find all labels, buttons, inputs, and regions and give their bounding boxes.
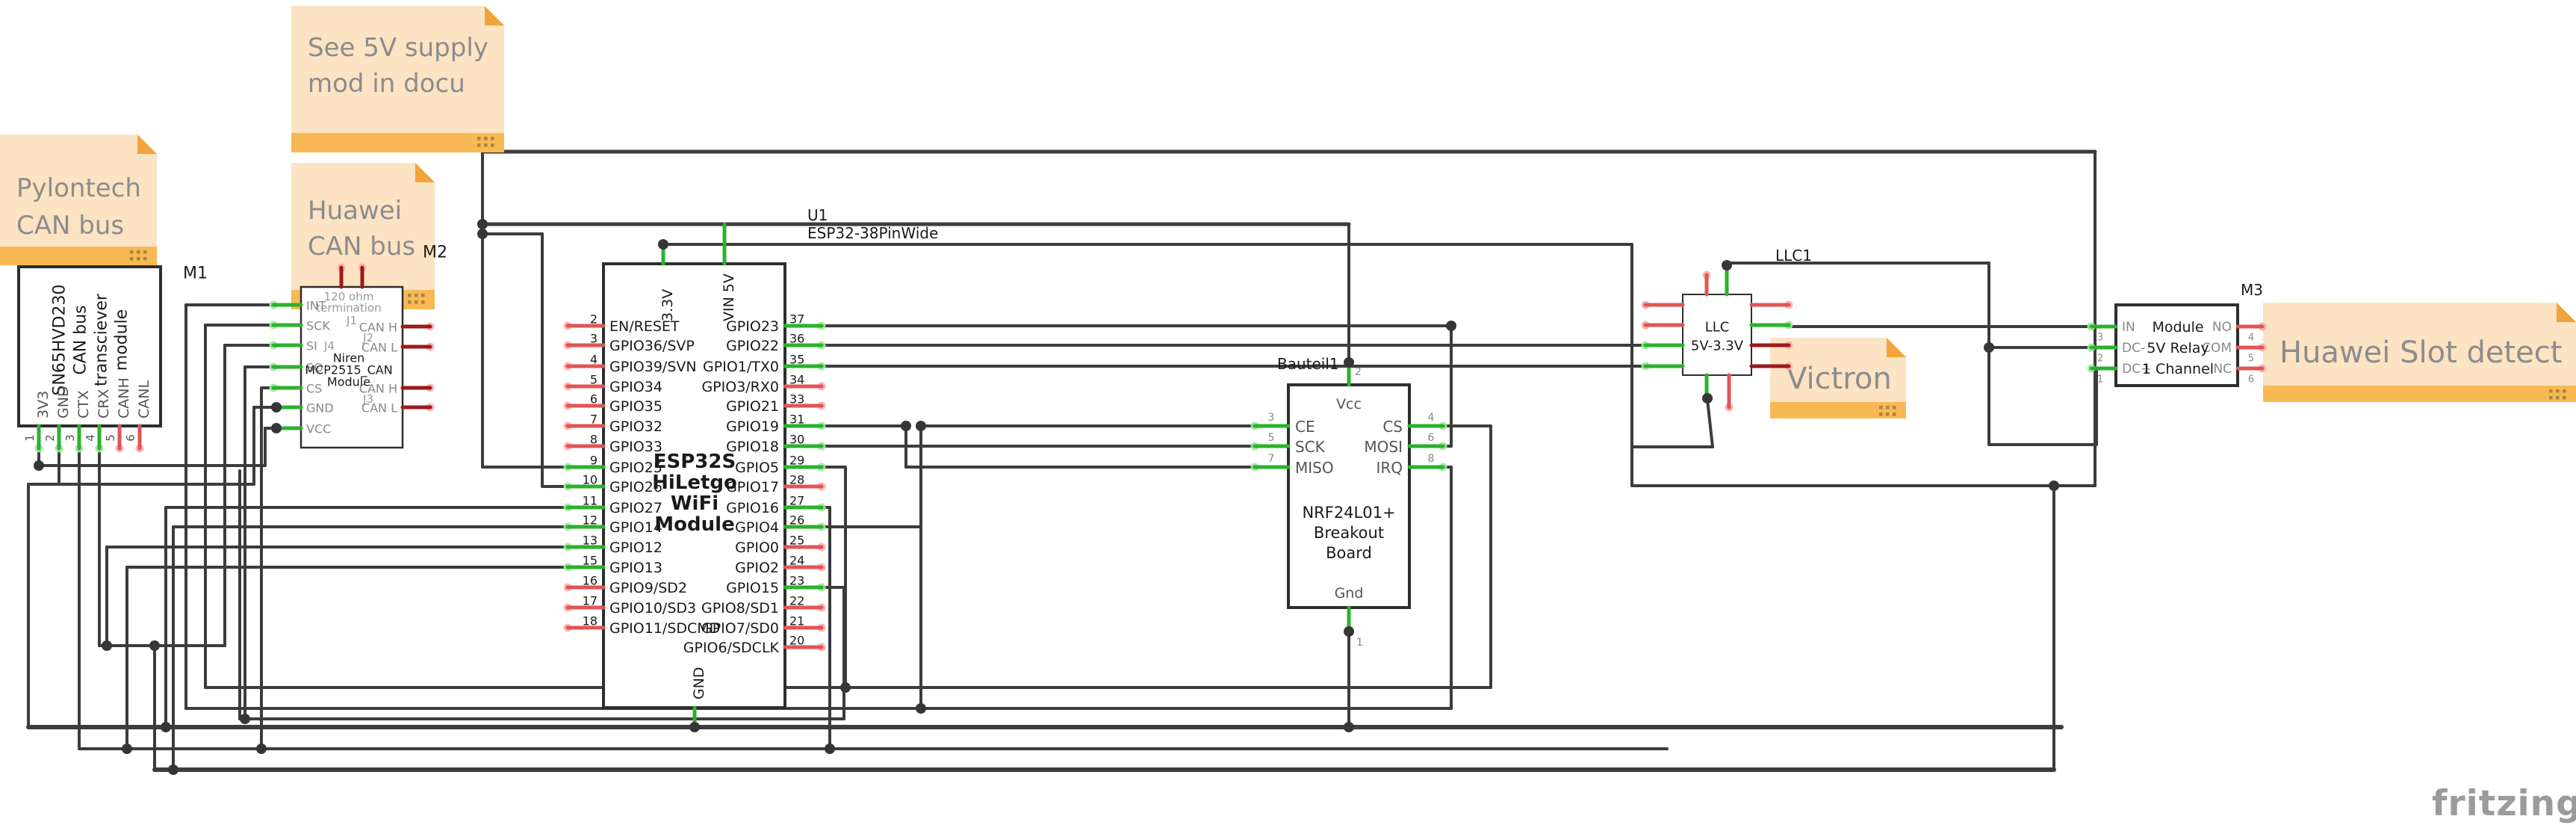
note-text: Huawei Slot detect (2279, 336, 2562, 370)
label: 13 (583, 534, 598, 548)
note-resize-handle-icon[interactable] (1893, 412, 1896, 416)
label: Board (1326, 544, 1372, 562)
label: 6 (590, 392, 598, 407)
label: EN/RESET (609, 318, 680, 335)
label: GPIO10/SD3 (609, 600, 696, 617)
note-resize-handle-icon[interactable] (477, 137, 481, 140)
label: 5 (1268, 432, 1275, 444)
label: 34 (789, 373, 804, 387)
label: 23 (789, 574, 804, 588)
note-resize-handle-icon[interactable] (137, 257, 140, 261)
label: 6 (1428, 432, 1435, 444)
label: transciever (93, 293, 111, 386)
label: IRQ (1376, 459, 1403, 477)
wire-junction[interactable] (689, 722, 700, 732)
note-resize-handle-icon[interactable] (130, 257, 134, 261)
label: Module (327, 375, 370, 389)
component-bauteil1-nrf24l01-breakout-board[interactable]: Bauteil1VccGndCESCKMISOCSMOSIIRQNRF24L01… (1251, 355, 1447, 649)
wire-junction[interactable] (825, 744, 835, 754)
label: M3 (2241, 281, 2263, 299)
label: GPIO14 (609, 519, 662, 536)
note-resize-handle-icon[interactable] (421, 294, 425, 297)
note-resize-handle-icon[interactable] (143, 250, 147, 254)
label: 3.3V (659, 289, 676, 321)
label: 8 (590, 433, 598, 447)
label: 18 (583, 614, 598, 628)
label: 30 (789, 433, 804, 447)
label: CANH (116, 377, 132, 418)
label: GPIO8/SD1 (701, 600, 779, 617)
label: 2 (1355, 366, 1362, 378)
label: Bauteil1 (1277, 355, 1339, 373)
note-resize-handle-icon[interactable] (130, 250, 134, 254)
note-resize-handle-icon[interactable] (1886, 406, 1890, 410)
label: 33 (789, 392, 804, 407)
label: ESP32-38PinWide (807, 224, 938, 242)
label: 9 (590, 454, 598, 468)
wire-junction[interactable] (1344, 626, 1354, 637)
note-resize-handle-icon[interactable] (415, 300, 418, 304)
label: CAN bus (72, 305, 90, 374)
label: 27 (789, 494, 804, 508)
label: GPIO1/TX0 (703, 359, 779, 375)
label: GPIO4 (735, 519, 779, 536)
wire-junction[interactable] (102, 640, 112, 651)
label: NRF24L01+ (1302, 504, 1395, 522)
label: GND (691, 667, 707, 699)
label: MOSI (1364, 438, 1403, 456)
label: CS (1382, 418, 1403, 436)
wire-junction[interactable] (916, 421, 926, 431)
wire-junction[interactable] (916, 703, 926, 714)
label: Gnd (1335, 585, 1364, 602)
wire[interactable] (1707, 400, 1713, 447)
label: Vcc (1336, 396, 1362, 412)
label: M2 (423, 244, 447, 262)
label: GPIO7/SD0 (701, 620, 779, 637)
note-resize-handle-icon[interactable] (491, 143, 494, 147)
label: 3 (590, 332, 598, 346)
label: 37 (789, 312, 804, 327)
label: DC- (2122, 341, 2145, 356)
label: NC (2213, 362, 2232, 377)
note-resize-handle-icon[interactable] (2549, 396, 2553, 400)
label: 22 (789, 594, 804, 608)
component-u1-esp32-hiletgo-wifi-module[interactable]: U1ESP32-38PinWideESP32SHiLetgoWiFiModule… (564, 206, 939, 725)
note-resize-handle-icon[interactable] (137, 250, 140, 254)
label: VIN 5V (721, 274, 737, 321)
label: 8 (1428, 453, 1435, 465)
label: Module (654, 513, 734, 536)
label: CTX (75, 390, 92, 418)
label: GND (306, 401, 334, 415)
note-resize-handle-icon[interactable] (143, 257, 147, 261)
label: 4 (84, 434, 97, 442)
label: 5 (590, 373, 598, 387)
label: 17 (583, 594, 598, 608)
label: Breakout (1314, 524, 1384, 542)
wire-junction[interactable] (271, 402, 282, 412)
label: GPIO26 (609, 479, 662, 495)
label: GPIO36/SVP (609, 338, 695, 354)
label: SCK (306, 319, 330, 333)
note-huawei-slot-detect[interactable]: Huawei Slot detect (2263, 303, 2576, 402)
label: module (113, 309, 131, 371)
label: 29 (789, 454, 804, 468)
label: J2 (362, 331, 373, 344)
wire-junction[interactable] (2049, 481, 2059, 491)
wire-junction[interactable] (122, 744, 132, 754)
label: 25 (789, 534, 804, 548)
wire-junction[interactable] (1344, 357, 1354, 368)
label: GPIO39/SVN (609, 359, 697, 375)
label: 15 (583, 554, 598, 568)
label: 12 (583, 513, 598, 528)
label: 5 (2248, 353, 2254, 365)
note-resize-handle-icon[interactable] (2549, 389, 2553, 393)
note-victron[interactable]: Victron (1770, 338, 1906, 418)
note-text: CAN bus (308, 232, 415, 262)
label: GPIO15 (726, 580, 779, 596)
component-m3-5v-relay-module-1-channel[interactable]: M3INDC-DC+NOCOMNCModule5V Relay1 Channel… (2088, 281, 2267, 386)
wire-junction[interactable] (240, 714, 250, 724)
note-text: Victron (1787, 362, 1892, 396)
label: CRX (96, 389, 112, 418)
label: 2 (590, 312, 598, 327)
note-resize-handle-icon[interactable] (2563, 389, 2566, 393)
label: 5 (104, 434, 117, 442)
label: GPIO19 (726, 418, 779, 435)
label: 35 (789, 353, 804, 367)
note-resize-handle-icon[interactable] (484, 143, 488, 147)
label: 1 (2097, 374, 2103, 386)
note-fold-icon (415, 163, 435, 182)
label: GND (55, 386, 72, 418)
label: 3V3 (35, 391, 52, 418)
note-bar (0, 247, 157, 265)
wire-junction[interactable] (901, 421, 911, 431)
label: 5V Relay (2147, 340, 2209, 356)
wire-junction[interactable] (1344, 722, 1354, 732)
label: HiLetgo (652, 472, 737, 494)
label: LLC (1705, 320, 1730, 336)
wire-junction[interactable] (168, 764, 179, 775)
label: J1 (346, 314, 357, 327)
label: 6 (124, 434, 137, 442)
label: VCC (306, 422, 331, 436)
wire-junction[interactable] (477, 219, 488, 229)
wire-junction[interactable] (477, 229, 488, 239)
label: 20 (789, 634, 804, 648)
note-resize-handle-icon[interactable] (415, 294, 418, 297)
label: 4 (2248, 333, 2254, 344)
label: 2 (43, 434, 57, 442)
label: 3 (1268, 412, 1275, 424)
note-resize-handle-icon[interactable] (408, 294, 412, 297)
label: 6 (2248, 374, 2254, 386)
note-bar (1770, 402, 1906, 418)
note-resize-handle-icon[interactable] (421, 300, 425, 304)
note-pylontech-can-bus[interactable]: PylontechCAN bus (0, 135, 157, 265)
label: CANL (136, 380, 152, 418)
label: GPIO12 (609, 540, 662, 556)
label: 1 Channel (2142, 361, 2214, 377)
label: GPIO35 (609, 398, 662, 415)
label: NO (2212, 320, 2232, 335)
label: GPIO5 (735, 460, 779, 476)
label: 28 (789, 473, 804, 487)
label: U1 (807, 206, 828, 224)
label: LLC1 (1775, 247, 1812, 265)
note-fold-icon (485, 6, 504, 25)
label: GPIO34 (609, 379, 662, 395)
label: GPIO25 (609, 460, 662, 476)
note-resize-handle-icon[interactable] (1879, 412, 1883, 416)
note-resize-handle-icon[interactable] (477, 143, 481, 147)
wire-junction[interactable] (1446, 321, 1456, 331)
label: 1 (23, 434, 37, 442)
note-resize-handle-icon[interactable] (484, 137, 488, 140)
label: CE (1295, 418, 1315, 436)
note-fold-icon (2557, 303, 2576, 322)
label: 31 (789, 412, 804, 427)
label: GPIO32 (609, 418, 662, 435)
wire-junction[interactable] (1702, 393, 1713, 404)
note-resize-handle-icon[interactable] (1879, 406, 1883, 410)
label: WiFi (671, 492, 719, 515)
note-resize-handle-icon[interactable] (2556, 389, 2560, 393)
wire-junction[interactable] (271, 423, 282, 433)
label: ESP32S (654, 451, 736, 473)
wire-junction[interactable] (658, 239, 668, 250)
note-resize-handle-icon[interactable] (1893, 406, 1896, 410)
wire-junction[interactable] (149, 640, 160, 651)
label: GPIO2 (735, 560, 779, 576)
label: 21 (789, 614, 804, 628)
label: 2 (2097, 353, 2103, 365)
label: GPIO23 (726, 318, 779, 335)
label: Module (2152, 319, 2203, 336)
label: GPIO27 (609, 500, 662, 516)
note-see-5v-supply[interactable]: See 5V supplymod in docu (291, 6, 504, 152)
label: GPIO21 (726, 398, 779, 415)
label: 11 (583, 494, 598, 508)
note-text: Pylontech (16, 173, 141, 203)
label: 4 (1428, 412, 1435, 424)
note-resize-handle-icon[interactable] (2563, 396, 2566, 400)
label: GPIO17 (726, 479, 779, 495)
label: GPIO6/SDCLK (683, 640, 780, 656)
label: SCK (1295, 438, 1326, 456)
label: 26 (789, 513, 804, 528)
note-bar (291, 133, 504, 152)
note-text: Huawei (308, 196, 402, 226)
label: 16 (583, 574, 598, 588)
label: 4 (590, 353, 598, 367)
label: 24 (789, 554, 804, 568)
label: GPIO9/SD2 (609, 580, 687, 596)
note-resize-handle-icon[interactable] (491, 137, 494, 140)
label: GPIO13 (609, 560, 662, 576)
component-m1-sn65hvd230-can-transceiver[interactable]: M1SN65HVD230CAN bustranscievermodule3V3G… (19, 265, 208, 453)
label: 3 (2097, 333, 2103, 344)
note-text: mod in docu (308, 69, 465, 99)
label: 3 (63, 434, 77, 442)
label: 7 (590, 412, 598, 427)
label: SN65HVD230 (51, 285, 69, 396)
note-resize-handle-icon[interactable] (408, 300, 412, 304)
label: 36 (789, 332, 804, 346)
label: CS (306, 382, 322, 396)
note-fold-icon (1887, 338, 1906, 357)
note-resize-handle-icon[interactable] (2556, 396, 2560, 400)
wire-junction[interactable] (1722, 260, 1732, 271)
note-fold-icon (137, 135, 157, 154)
label: 10 (583, 473, 598, 487)
schematic-canvas[interactable]: See 5V supplymod in docuHuaweiCAN busPyl… (0, 0, 2576, 825)
note-bar (2263, 386, 2576, 402)
note-text: CAN bus (16, 211, 124, 241)
wire-junction[interactable] (161, 722, 171, 732)
wire-junction[interactable] (1984, 342, 1994, 353)
wire-junction[interactable] (34, 460, 44, 471)
label: SI (306, 339, 317, 353)
label: GPIO3/RX0 (701, 379, 779, 395)
fritzing-watermark: fritzing (2432, 783, 2576, 824)
label: J3 (362, 392, 373, 406)
label: GPIO0 (735, 540, 779, 556)
label: 5V-3.3V (1691, 339, 1744, 354)
label: GPIO33 (609, 439, 662, 455)
label: GPIO16 (726, 500, 779, 516)
label: GPIO22 (726, 338, 779, 354)
label: GPIO18 (726, 439, 779, 455)
wire-junction[interactable] (256, 744, 267, 754)
label: IN (2122, 320, 2135, 335)
note-resize-handle-icon[interactable] (1886, 412, 1890, 416)
label: 1 (1356, 637, 1363, 649)
label: INT (306, 299, 326, 313)
note-text: See 5V supply (308, 33, 488, 63)
wire-junction[interactable] (840, 682, 851, 693)
label: 7 (1268, 453, 1275, 465)
label: M1 (183, 265, 208, 283)
label: MISO (1295, 459, 1334, 477)
